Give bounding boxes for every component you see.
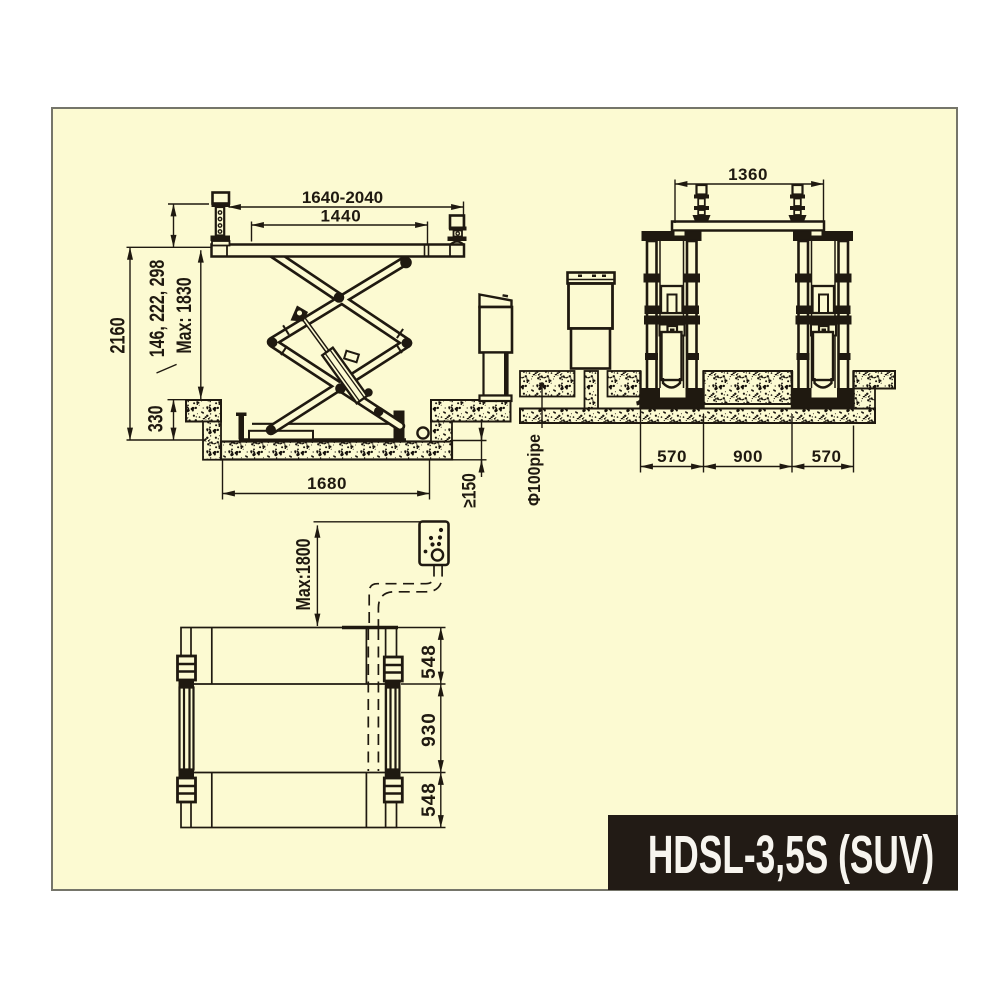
svg-text:930: 930 xyxy=(419,712,440,747)
svg-text:146, 222, 298: 146, 222, 298 xyxy=(145,260,169,358)
svg-text:≥150: ≥150 xyxy=(458,473,480,508)
svg-text:548: 548 xyxy=(419,644,440,679)
svg-text:900: 900 xyxy=(733,447,763,466)
svg-text:570: 570 xyxy=(657,447,687,466)
svg-text:Φ100pipe: Φ100pipe xyxy=(524,434,544,506)
svg-text:HDSL-3,5S (SUV): HDSL-3,5S (SUV) xyxy=(648,825,934,885)
svg-text:570: 570 xyxy=(812,447,842,466)
svg-text:548: 548 xyxy=(419,782,440,817)
svg-text:1440: 1440 xyxy=(320,207,361,226)
svg-text:Max:1800: Max:1800 xyxy=(292,538,314,610)
svg-text:330: 330 xyxy=(143,405,167,432)
svg-text:Max: 1830: Max: 1830 xyxy=(172,277,196,353)
svg-text:1680: 1680 xyxy=(307,474,347,493)
svg-text:2160: 2160 xyxy=(106,317,130,353)
svg-text:1640-2040: 1640-2040 xyxy=(302,188,383,207)
svg-text:1360: 1360 xyxy=(728,165,768,184)
